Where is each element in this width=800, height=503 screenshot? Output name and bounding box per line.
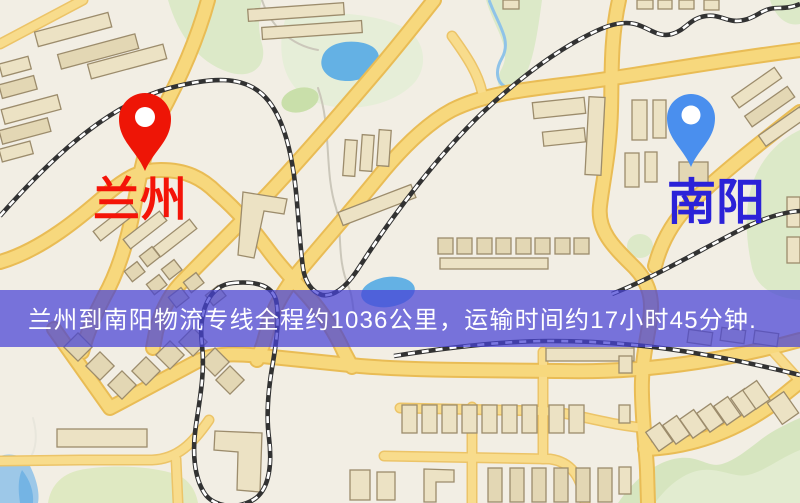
map-screenshot: 兰州 南阳 兰州到南阳物流专线全程约1036公里，运输时间约17小时45分钟. [0,0,800,503]
origin-label: 兰州 [93,173,187,226]
route-info-text: 兰州到南阳物流专线全程约1036公里，运输时间约17小时45分钟. [28,307,757,334]
map-canvas[interactable]: 兰州 南阳 兰州到南阳物流专线全程约1036公里，运输时间约17小时45分钟. [0,0,800,503]
origin-pin-hole [135,107,155,127]
destination-label: 南阳 [667,176,765,230]
destination-pin-hole [682,106,701,125]
route-info-banner: 兰州到南阳物流专线全程约1036公里，运输时间约17小时45分钟. [0,290,800,347]
